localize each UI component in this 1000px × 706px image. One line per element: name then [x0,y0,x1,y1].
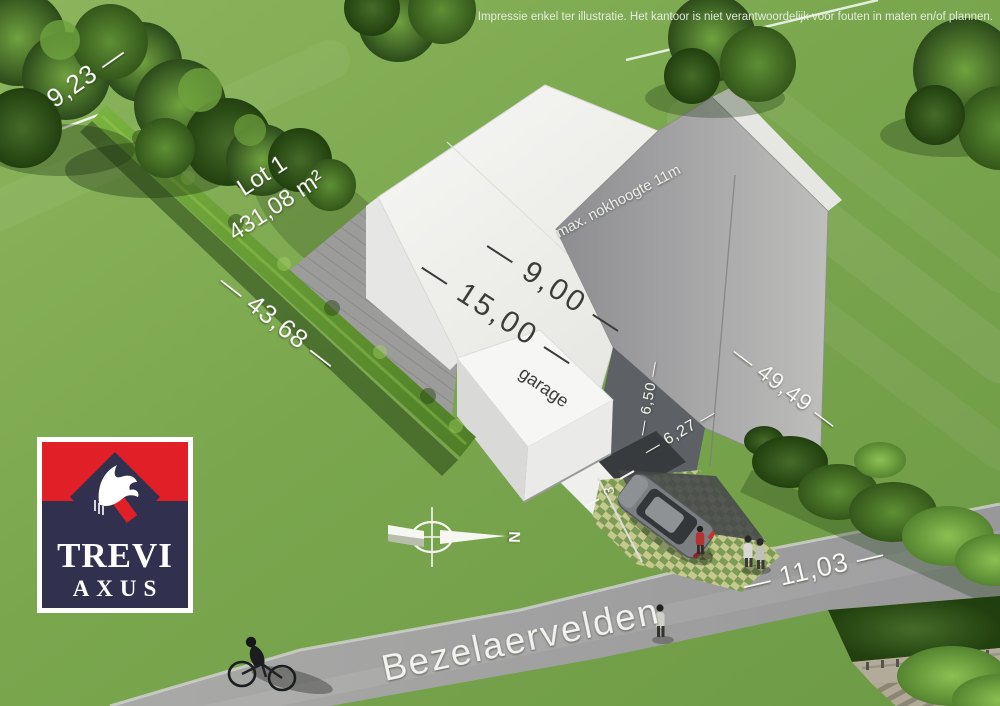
trevi-axus-logo: TREVI AXUS [37,437,193,613]
scene-canvas: N 9,23 — Lot 1 431,08 m² — 43,68 — — 9,0… [0,0,1000,706]
logo-text-trevi: TREVI [57,536,173,575]
logo-text-axus: AXUS [73,576,164,601]
site-plan-impression: N 9,23 — Lot 1 431,08 m² — 43,68 — — 9,0… [0,0,1000,706]
disclaimer-text: Impressie enkel ter illustratie. Het kan… [478,11,993,23]
compass-north-label: N [505,531,522,543]
